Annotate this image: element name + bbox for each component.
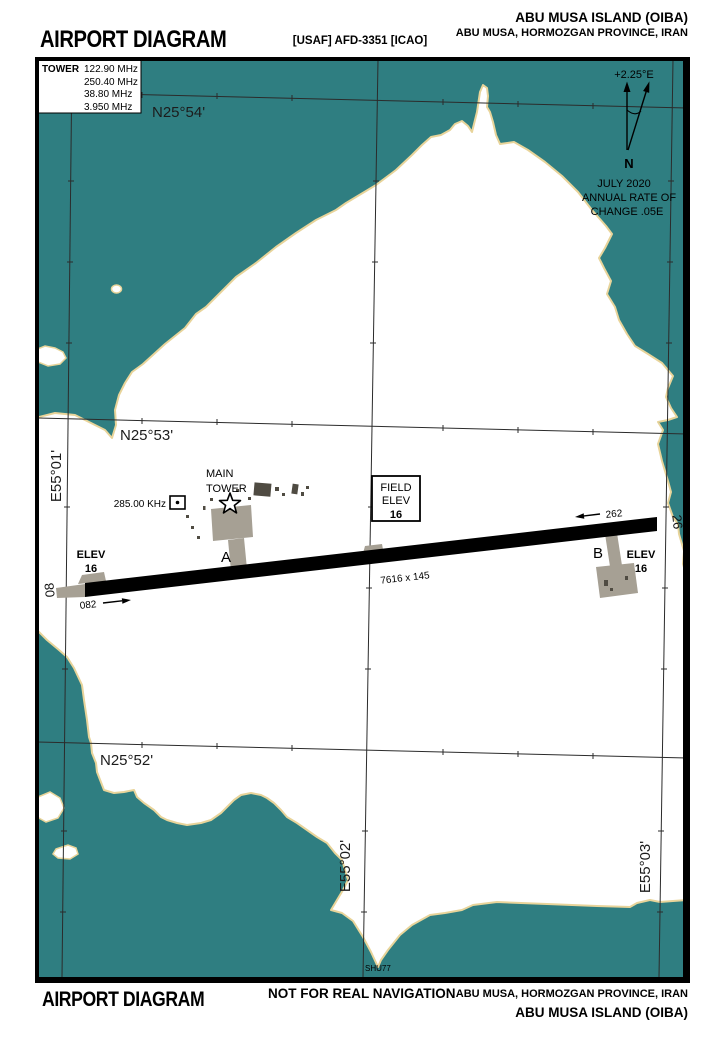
lon-label-02: E55°02' bbox=[337, 840, 354, 892]
east-elev-label: ELEV bbox=[627, 549, 656, 561]
field-elev-value: 16 bbox=[390, 509, 402, 521]
footer-location: ABU MUSA, HORMOZGAN PROVINCE, IRAN bbox=[456, 988, 688, 1000]
airport-location: ABU MUSA, HORMOZGAN PROVINCE, IRAN bbox=[456, 27, 688, 39]
east-elev-value: 16 bbox=[635, 563, 647, 575]
footer-title-text: AIRPORT DIAGRAM bbox=[42, 988, 204, 1012]
taxiway-a-label: A bbox=[221, 549, 231, 566]
lon-label-03: E55°03' bbox=[637, 841, 654, 893]
main-tower-label-line2: TOWER bbox=[206, 483, 247, 495]
north-label: N bbox=[624, 156, 633, 171]
airport-name: ABU MUSA ISLAND (OIBA) bbox=[515, 10, 688, 25]
lat-label-54: N25°54' bbox=[152, 104, 205, 121]
ndb-frequency-label: 285.00 KHz bbox=[114, 499, 166, 510]
annual-rate-line2: CHANGE .05E bbox=[591, 206, 664, 218]
taxiway-b-label: B bbox=[593, 545, 603, 562]
ndb-icon bbox=[170, 496, 185, 509]
field-elev-line2: ELEV bbox=[382, 495, 411, 507]
compass-date-label: JULY 2020 bbox=[597, 178, 650, 190]
not-for-navigation-warning: NOT FOR REAL NAVIGATION bbox=[268, 986, 456, 1001]
page-title-text: AIRPORT DIAGRAM bbox=[40, 26, 226, 54]
footer-airport-name: ABU MUSA ISLAND (OIBA) bbox=[515, 1005, 688, 1020]
field-elev-box: FIELD ELEV 16 bbox=[372, 476, 420, 521]
declination-label: +2.25°E bbox=[614, 69, 654, 81]
page-title: AIRPORT DIAGRAM bbox=[40, 26, 262, 54]
lon-label-01: E55°01' bbox=[48, 450, 65, 502]
tower-frequency-3: 38.80 MHz bbox=[84, 89, 132, 100]
doc-reference: [USAF] AFD-3351 [ICAO] bbox=[250, 35, 470, 47]
lat-label-53: N25°53' bbox=[120, 427, 173, 444]
airport-diagram-map: 285.00 KHz MAIN TOWER A B 7616 x 145 082… bbox=[35, 57, 690, 983]
chart-code-label: SHU77 bbox=[365, 964, 391, 973]
lat-label-52: N25°52' bbox=[100, 752, 153, 769]
footer-title: AIRPORT DIAGRAM bbox=[42, 988, 235, 1012]
tower-frequencies-box: TOWER 122.90 MHz 250.40 MHz 38.80 MHz 3.… bbox=[37, 59, 141, 113]
west-heading-label: 082 bbox=[79, 599, 97, 612]
tower-frequency-1: 122.90 MHz bbox=[84, 64, 138, 75]
tower-frequency-2: 250.40 MHz bbox=[84, 77, 138, 88]
runway-number-08: 08 bbox=[41, 582, 57, 598]
west-elev-label: ELEV bbox=[77, 549, 106, 561]
east-heading-label: 262 bbox=[605, 508, 623, 521]
field-elev-line1: FIELD bbox=[380, 482, 411, 494]
tower-box-label: TOWER bbox=[42, 64, 80, 75]
annual-rate-line1: ANNUAL RATE OF bbox=[582, 192, 676, 204]
tower-frequency-4: 3.950 MHz bbox=[84, 102, 132, 113]
west-elev-value: 16 bbox=[85, 563, 97, 575]
main-tower-label-line1: MAIN bbox=[206, 468, 234, 480]
